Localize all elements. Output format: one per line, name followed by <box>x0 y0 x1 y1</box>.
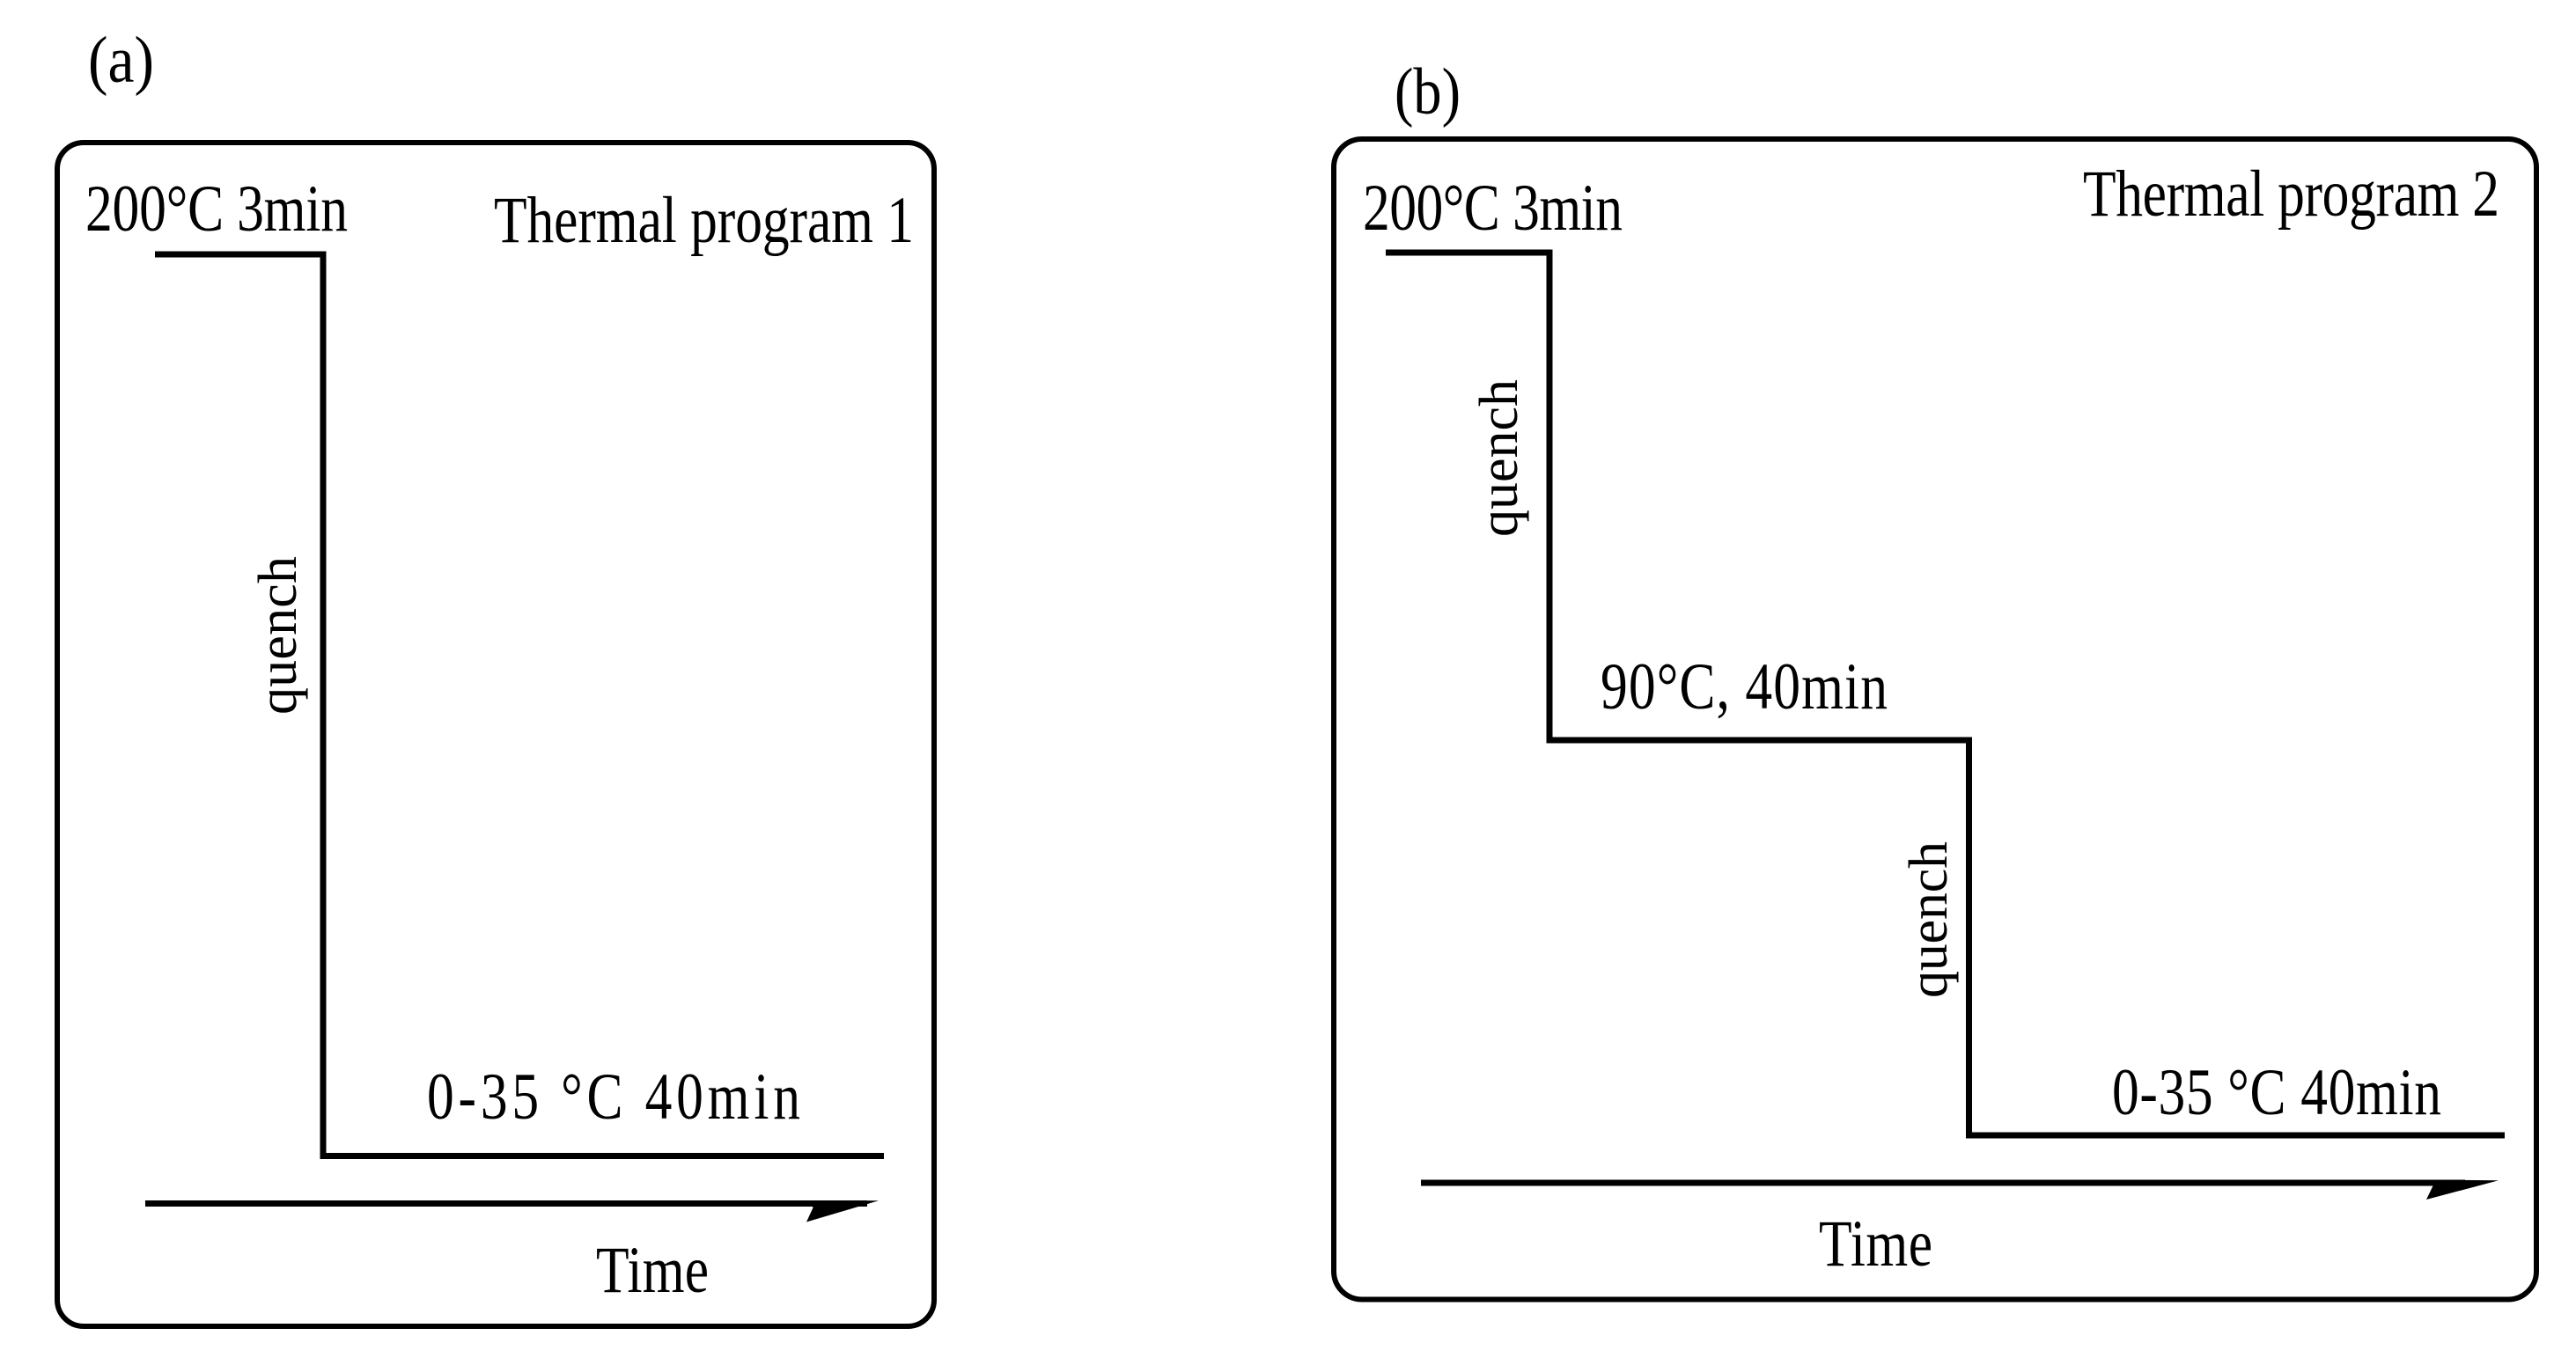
svg-text:200°C 3min: 200°C 3min <box>85 172 348 245</box>
svg-text:Thermal program 1: Thermal program 1 <box>494 183 914 256</box>
svg-text:(b): (b) <box>1395 55 1461 128</box>
svg-text:90°C, 40min: 90°C, 40min <box>1601 649 1888 723</box>
svg-text:quench: quench <box>1469 379 1529 537</box>
svg-text:0-35 °C 40min: 0-35 °C 40min <box>2112 1055 2441 1128</box>
svg-text:200°C 3min: 200°C 3min <box>1363 171 1623 244</box>
svg-text:quench: quench <box>1899 841 1959 998</box>
svg-text:(a): (a) <box>88 23 154 96</box>
svg-text:quench: quench <box>248 556 308 715</box>
svg-text:Time: Time <box>1819 1207 1932 1280</box>
svg-text:0-35 °C 40min: 0-35 °C 40min <box>427 1060 800 1133</box>
svg-text:Thermal program 2: Thermal program 2 <box>2083 157 2499 230</box>
svg-text:Time: Time <box>596 1233 709 1306</box>
